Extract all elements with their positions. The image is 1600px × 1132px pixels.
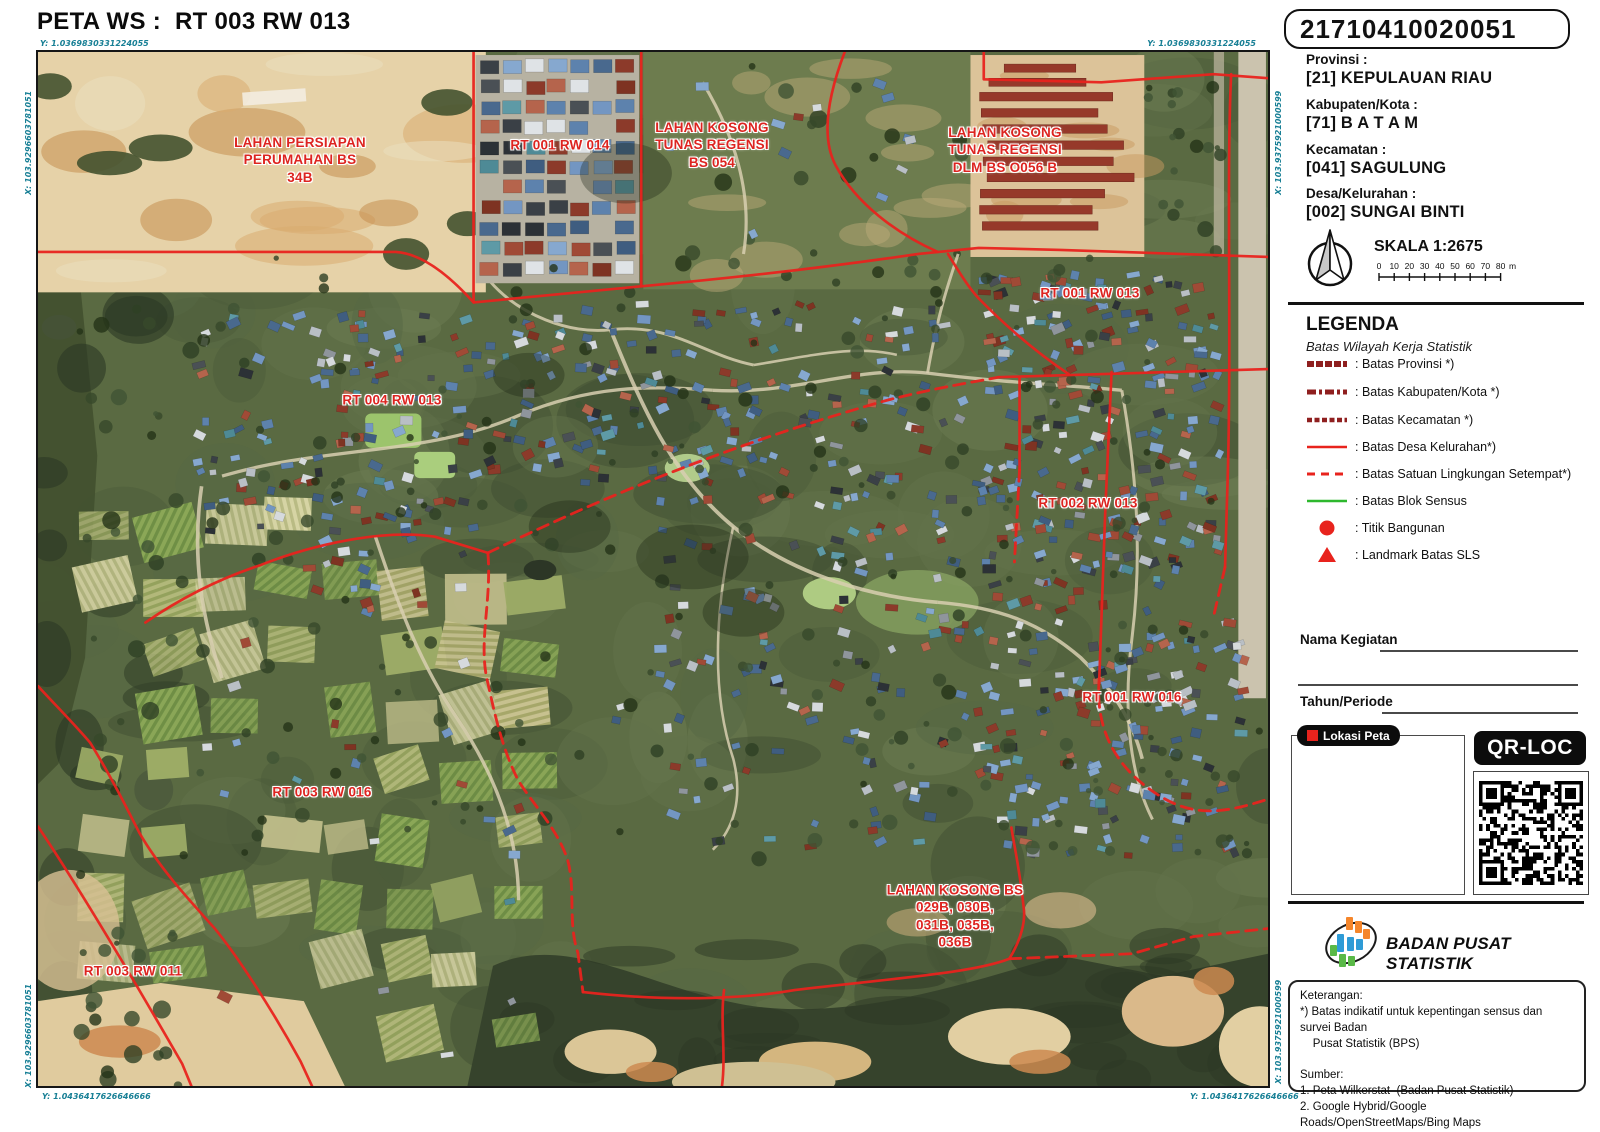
- peta-ws-document: PETA WS : RT 003 RW 013 LAHAN PERSIAPAN …: [0, 0, 1600, 1132]
- svg-text:10: 10: [1389, 261, 1399, 271]
- coord-bottom-right-y: Y: 1.0436417626646666: [1190, 1092, 1299, 1101]
- lokasi-peta-marker-icon: [1307, 730, 1318, 741]
- tahun-periode-line: [1382, 712, 1578, 714]
- legend-swatch-desa: [1306, 439, 1348, 455]
- svg-text:70: 70: [1481, 261, 1491, 271]
- divider: [1288, 901, 1584, 904]
- keterangan-box: Keterangan: *) Batas indikatif untuk kep…: [1288, 980, 1586, 1092]
- agency-name: BADAN PUSAT STATISTIK: [1386, 934, 1600, 974]
- svg-text:m: m: [1509, 261, 1516, 271]
- scale-bar: 01020304050607080m: [1374, 260, 1524, 286]
- lokasi-peta-label: Lokasi Peta: [1323, 729, 1390, 743]
- qr-loc-label: QR-LOC: [1474, 731, 1586, 765]
- legend-item-titik: : Titik Bangunan: [1306, 520, 1445, 536]
- nama-kegiatan-line-2: [1298, 684, 1578, 686]
- legend-swatch-provinsi: [1306, 356, 1348, 372]
- legend-swatch-kabkota: [1306, 384, 1348, 400]
- legend-swatch-kecamatan: [1306, 412, 1348, 428]
- nama-kegiatan-label: Nama Kegiatan: [1300, 632, 1398, 647]
- region-field: Provinsi :[21] KEPULAUAN RIAU: [1306, 52, 1492, 88]
- legend-subheading: Batas Wilayah Kerja Statistik: [1306, 339, 1472, 354]
- coord-right-x-top: X: 103.9375921000599: [1274, 91, 1283, 195]
- svg-text:0: 0: [1377, 261, 1382, 271]
- svg-text:40: 40: [1435, 261, 1445, 271]
- legend-item-landmark: : Landmark Batas SLS: [1306, 547, 1480, 563]
- coord-bottom-left-y: Y: 1.0436417626646666: [42, 1092, 151, 1101]
- divider: [1288, 302, 1584, 305]
- tahun-periode-label: Tahun/Periode: [1300, 694, 1393, 709]
- lokasi-peta-tab: Lokasi Peta: [1297, 725, 1400, 746]
- region-field: Kabupaten/Kota :[71] B A T A M: [1306, 97, 1418, 133]
- lokasi-peta-box: [1291, 735, 1465, 895]
- legend-item-kecamatan: : Batas Kecamatan *): [1306, 412, 1473, 428]
- legend-item-blok: : Batas Blok Sensus: [1306, 493, 1467, 509]
- north-arrow-icon: [1306, 228, 1354, 290]
- legend-item-kabkota: : Batas Kabupaten/Kota *): [1306, 384, 1500, 400]
- svg-text:20: 20: [1405, 261, 1415, 271]
- coord-top-left-y: Y: 1.0369830331224055: [40, 39, 149, 48]
- map-area: [36, 50, 1270, 1088]
- region-field: Kecamatan :[041] SAGULUNG: [1306, 142, 1446, 178]
- svg-text:30: 30: [1420, 261, 1430, 271]
- coord-left-x-top: X: 103.9296603781051: [24, 91, 33, 195]
- legend-swatch-sls: [1306, 466, 1348, 482]
- svg-text:80: 80: [1496, 261, 1506, 271]
- legend-swatch-blok: [1306, 493, 1348, 509]
- region-field: Desa/Kelurahan :[002] SUNGAI BINTI: [1306, 186, 1465, 222]
- scale-label: SKALA 1:2675: [1374, 238, 1483, 256]
- nama-kegiatan-line: [1380, 650, 1578, 652]
- satellite-map: [38, 52, 1268, 1086]
- legend-heading: LEGENDA: [1306, 314, 1399, 336]
- qr-code: [1473, 771, 1589, 895]
- legend-item-sls: : Batas Satuan Lingkungan Setempat*): [1306, 466, 1571, 482]
- bps-logo-icon: [1322, 914, 1380, 972]
- page-title: PETA WS : RT 003 RW 013: [37, 8, 351, 36]
- legend-swatch-landmark: [1306, 547, 1348, 563]
- map-id-code: 21710410020051: [1284, 9, 1570, 49]
- legend-item-provinsi: : Batas Provinsi *): [1306, 356, 1454, 372]
- svg-text:60: 60: [1465, 261, 1475, 271]
- coord-top-right-y: Y: 1.0369830331224055: [1147, 39, 1256, 48]
- coord-left-x-bottom: X: 103.9296603781051: [24, 984, 33, 1088]
- legend-swatch-titik: [1306, 520, 1348, 536]
- coord-right-x-bottom: X: 103.9375921000599: [1274, 980, 1283, 1084]
- legend-item-desa: : Batas Desa Kelurahan*): [1306, 439, 1496, 455]
- qr-code-pattern: [1479, 781, 1583, 885]
- svg-text:50: 50: [1450, 261, 1460, 271]
